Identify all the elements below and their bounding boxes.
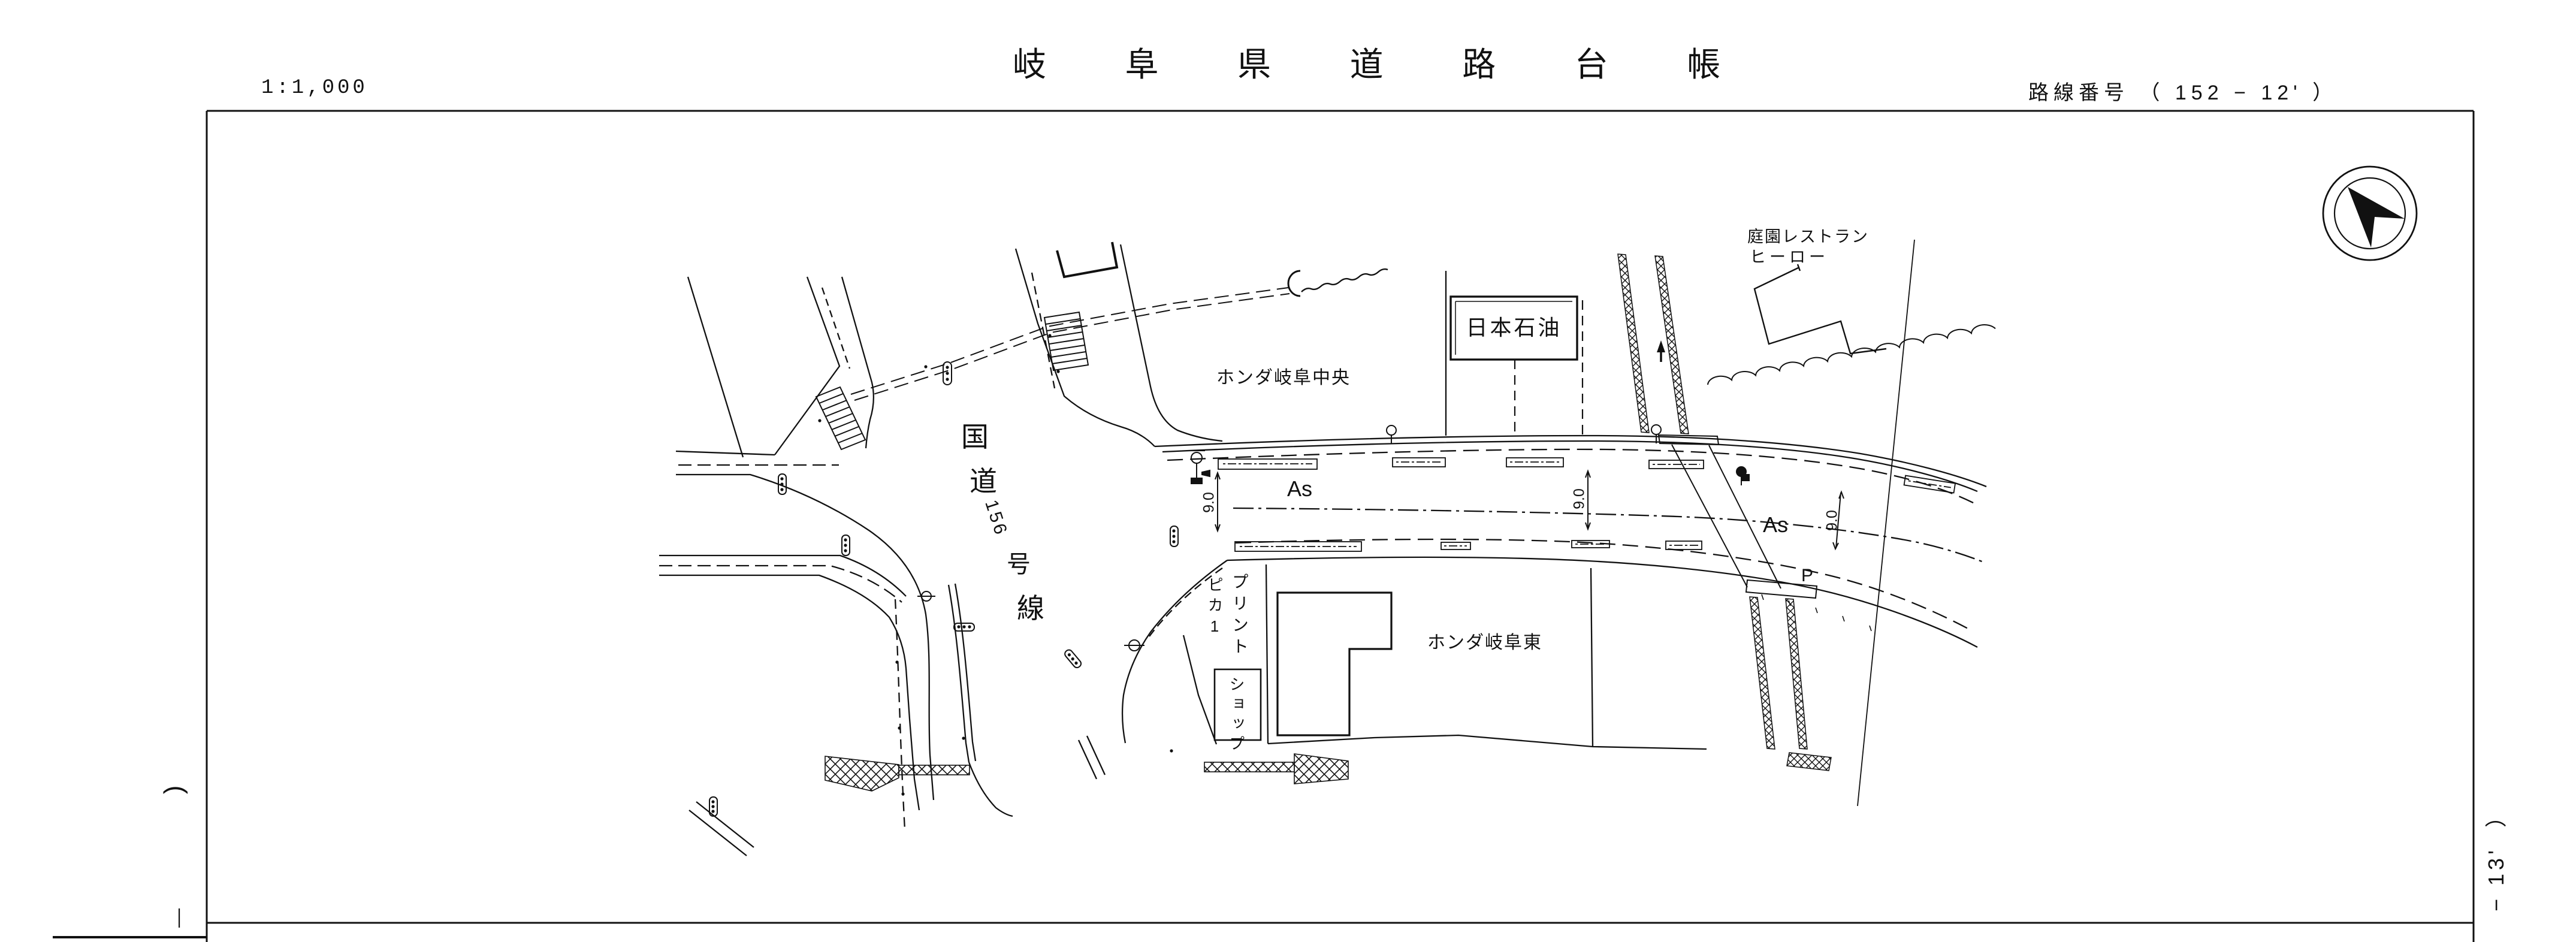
break-squiggle <box>1301 269 1388 292</box>
channelization-islands <box>825 754 1348 791</box>
left-edge-dash: ― <box>171 908 191 928</box>
west-road-north-edge <box>676 451 775 455</box>
route156-char-go: 号 <box>1007 552 1031 576</box>
page-title: 岐 阜 県 道 路 台 帳 <box>1013 48 1672 81</box>
scalloped-fence <box>1708 325 1995 385</box>
route-number: 路線番号 （ 152 − 12' ） <box>2028 83 2338 103</box>
width-label-3: 9.0 <box>1825 503 1840 539</box>
survey-dots <box>818 334 1173 795</box>
route156-char-sen: 線 <box>1017 594 1044 622</box>
bottom-left-road-stub <box>689 802 754 856</box>
intersection-southwest-sweep <box>676 475 934 800</box>
pavement-label-as-1: As <box>1287 478 1312 500</box>
north-arrow-icon <box>2323 167 2417 260</box>
main-road-north-edge <box>1155 436 1986 487</box>
route156-char-do: 道 <box>970 467 997 495</box>
pavement-label-as-2: As <box>1763 514 1788 536</box>
nnw-road-west-edge <box>775 277 839 455</box>
south-road-east-edge <box>949 585 969 762</box>
print-shop-name-label: ピカ1 <box>1207 576 1222 640</box>
south-road-end-curve <box>969 762 1013 816</box>
left-edge-bracket: ( <box>164 786 190 795</box>
honda-east-label: ホンダ岐阜東 <box>1427 634 1542 652</box>
main-road-south-edge <box>1227 557 1977 647</box>
main-road-centerline <box>1233 508 1983 562</box>
parking-label: P <box>1801 567 1813 585</box>
road-ledger-sheet: 1:1,000 岐 阜 県 道 路 台 帳 路線番号 （ 152 − 12' ）… <box>0 0 2576 942</box>
north-road-east-edge <box>1121 244 1222 441</box>
crosswalk-northwest <box>816 387 865 449</box>
route156-char-kuni: 国 <box>961 423 989 451</box>
map-canvas <box>0 0 2576 942</box>
width-label-2: 9.0 <box>1572 481 1587 517</box>
main-road-north-edge-inner <box>1162 441 1977 491</box>
gas-station-parcel <box>1446 271 1583 436</box>
width-label-1: 9.0 <box>1202 485 1217 521</box>
restaurant-area <box>1708 240 1995 806</box>
northwest-parcel-line <box>688 277 743 457</box>
gas-station-label: 日本石油 <box>1466 317 1562 339</box>
fenced-path <box>1618 254 1831 771</box>
honda-east-building <box>1278 593 1391 735</box>
sector-boundary-line <box>1858 240 1914 806</box>
right-edge-sheet-label: − 13' ） <box>2486 767 2507 942</box>
main-road-south-dashed <box>1236 539 1971 630</box>
print-shop-label-top: プリント <box>1231 573 1248 659</box>
print-shop-label-boxed: ショップ <box>1228 676 1244 755</box>
restaurant-building <box>1754 267 1886 354</box>
pole-symbol <box>709 362 1178 816</box>
frontage-continuation <box>1079 736 1105 779</box>
small-building-outline <box>1057 242 1117 277</box>
restaurant-label-line2: ヒーロー <box>1750 249 1829 265</box>
restaurant-label-line1: 庭園レストラン <box>1747 229 1869 245</box>
shop-frontage-edge <box>1183 635 1216 744</box>
honda-east-parcel <box>1215 564 1707 749</box>
honda-central-label: ホンダ岐阜中央 <box>1216 369 1351 387</box>
nnw-road-east-edge <box>842 277 874 448</box>
scale-label: 1:1,000 <box>261 78 368 98</box>
